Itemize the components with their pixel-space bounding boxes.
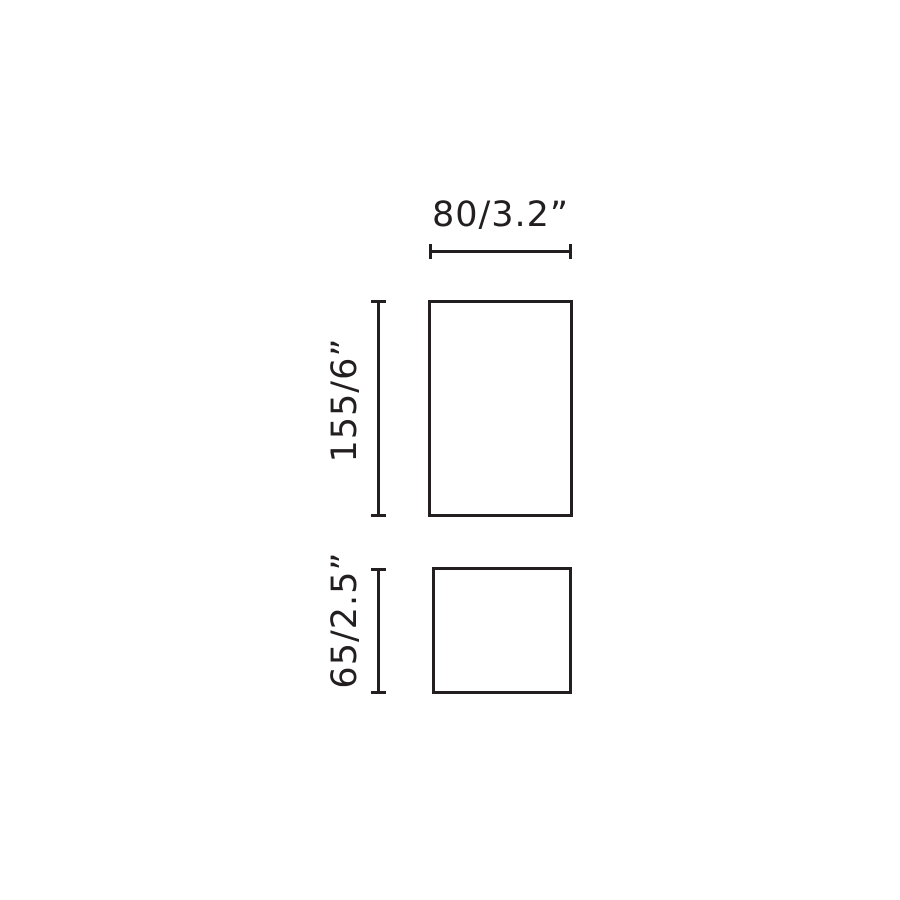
dimension-line (429, 250, 572, 253)
dimension-tick-bottom (371, 514, 386, 517)
dimension-line (377, 568, 380, 694)
lower-height-dimension-line (371, 568, 386, 694)
upper-height-dimension-label: 155/6” (323, 310, 367, 490)
upper-rect-outline (428, 300, 573, 517)
dimension-diagram: 80/3.2” 155/6” 65/2.5” (0, 0, 900, 900)
upper-height-dimension-line (371, 300, 386, 517)
width-dimension-label: 80/3.2” (429, 192, 572, 238)
lower-rect-outline (432, 567, 572, 694)
dimension-tick-right (569, 244, 572, 259)
lower-height-dimension-label: 65/2.5” (323, 530, 367, 710)
dimension-line (377, 300, 380, 517)
dimension-tick-bottom (371, 691, 386, 694)
width-dimension-line (429, 244, 572, 259)
